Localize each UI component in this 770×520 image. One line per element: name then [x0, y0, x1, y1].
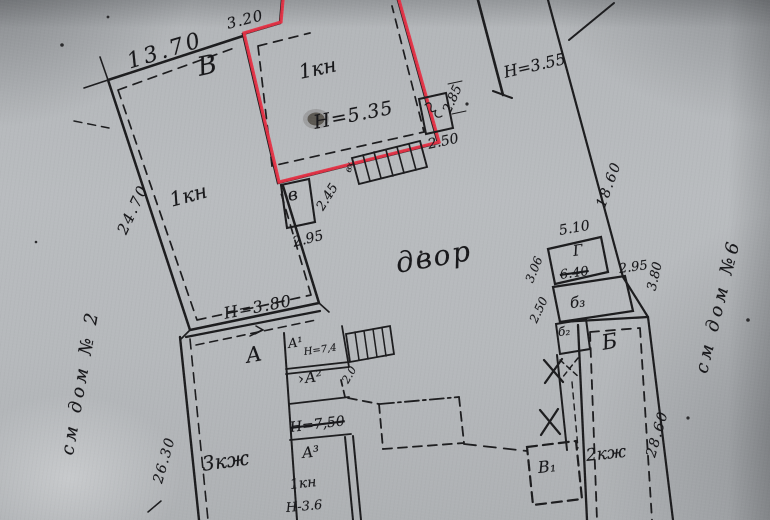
building-b-use: 2кж — [585, 444, 627, 465]
building-b2-letter: б₂ — [557, 325, 570, 338]
building-b3-outline — [553, 276, 633, 322]
red-highlight-outline — [244, 0, 439, 182]
building-a-use: 3кж — [201, 447, 251, 473]
strip-marks — [540, 355, 580, 450]
building-a3-use: 1кн — [289, 475, 317, 492]
a2-text: А² — [304, 367, 324, 387]
building-a3-letter: А³ — [301, 444, 320, 461]
dim-2-95-b3: 2.95 — [618, 259, 648, 276]
building-b3-letter: б₃ — [569, 294, 586, 311]
shed-v1-outline — [464, 441, 582, 505]
building-a1-letter: А¹ — [287, 336, 304, 351]
walkway-dashed — [341, 380, 464, 449]
structure-g-letter: Г — [572, 243, 584, 259]
shed-v1-letter: В₁ — [537, 458, 557, 476]
wall-ne — [478, 0, 614, 98]
building-a2-letter: ›А² — [297, 369, 323, 387]
ink-specks — [35, 16, 750, 420]
scanned-plan: 13.70 3.20 В 1кн 24.70 Н=3.80 1кн Н=5.35… — [0, 0, 770, 520]
misc-marks — [148, 501, 161, 512]
dim-6-40-struck: 6.40 — [559, 265, 589, 282]
direction-arrow — [250, 326, 263, 336]
stairs-a — [346, 326, 394, 362]
building-a-letter: А — [244, 343, 263, 366]
building-a3-height: Н-3.6 — [285, 499, 322, 515]
